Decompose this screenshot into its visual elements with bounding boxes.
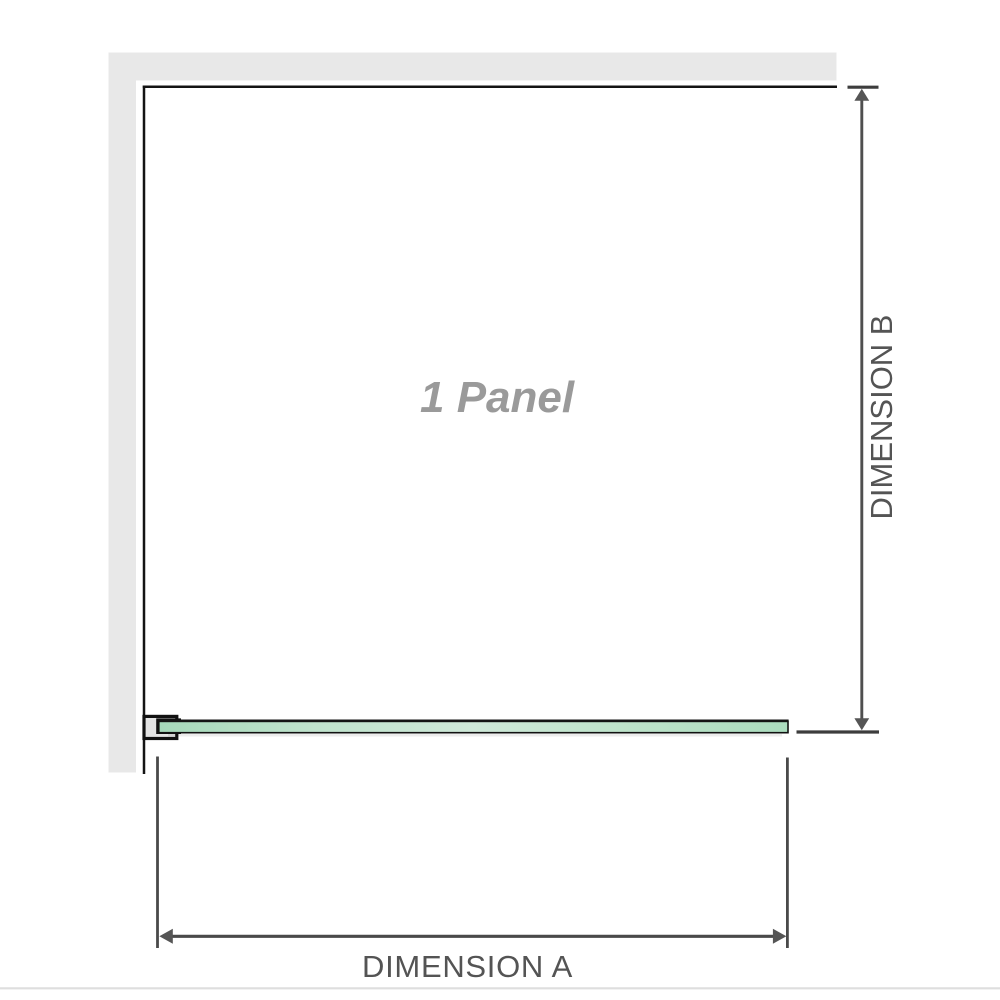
svg-text:DIMENSION B: DIMENSION B <box>864 315 899 520</box>
svg-text:1 Panel: 1 Panel <box>420 373 575 422</box>
svg-text:DIMENSION A: DIMENSION A <box>362 949 573 984</box>
